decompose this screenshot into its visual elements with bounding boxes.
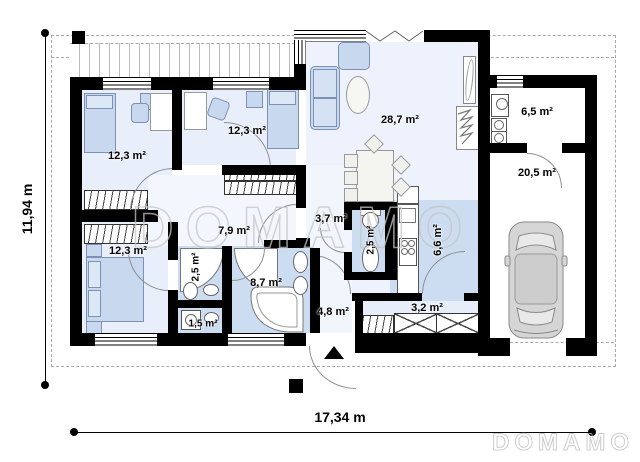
room-label-utility: 6,5 m² [521, 106, 553, 118]
dimension-dot [588, 428, 596, 436]
chair-icon [344, 171, 358, 185]
nightstand-icon [246, 91, 263, 108]
storage-box-icon [436, 313, 480, 334]
room-label-bedroom3: 12,3 m² [109, 245, 147, 257]
dimension-dot [41, 29, 49, 37]
wall [385, 202, 397, 280]
armchair-icon [338, 42, 370, 70]
room-label-bedroom2: 12,3 m² [228, 125, 266, 137]
burner-icon [408, 240, 415, 247]
wall [478, 30, 490, 346]
desk-icon [150, 93, 173, 131]
wall [296, 165, 306, 208]
wall [172, 90, 182, 170]
room-label-living-room: 28,7 m² [381, 114, 419, 126]
corner-window [294, 40, 306, 64]
entry-marker [289, 379, 303, 393]
dryer-door-icon [494, 133, 504, 143]
room-label-kitchen: 6,6 m² [432, 224, 444, 256]
wall [222, 165, 306, 175]
wall [566, 338, 597, 356]
burner-icon [408, 248, 415, 255]
window [103, 77, 151, 90]
fireplace-flame-icon [457, 108, 476, 146]
dimension-dot [41, 381, 49, 389]
wall [178, 300, 232, 308]
entrance-arrow-icon [324, 346, 344, 359]
watermark-footer: DOMAMO [492, 429, 634, 457]
wall [222, 308, 232, 333]
coffee-table-icon [346, 76, 370, 114]
window [497, 75, 523, 88]
sink-icon [203, 284, 219, 296]
wall [585, 75, 597, 356]
kitchen-sink-icon [399, 208, 416, 223]
wall [352, 293, 422, 301]
height-dimension-line [45, 33, 46, 385]
wall [296, 238, 310, 248]
height-dimension-label: 11,94 m [19, 184, 35, 235]
room-label-bathroom: 8,7 m² [250, 277, 282, 289]
burner-icon [401, 248, 408, 255]
wardrobe-icon [84, 224, 148, 244]
boiler-dial-icon [496, 98, 508, 110]
wall [168, 290, 178, 333]
sink-icon [293, 251, 308, 273]
chair-icon [131, 103, 149, 123]
pillow-icon [269, 91, 296, 105]
toilet-icon [183, 282, 198, 300]
wall [168, 222, 178, 260]
car-icon [504, 220, 568, 340]
pillow-icon [86, 95, 113, 109]
wardrobe-icon [224, 181, 306, 195]
room-label-hall: 3,7 m² [315, 213, 347, 225]
desk-icon [184, 92, 207, 130]
sofa-cushion-icon [313, 98, 337, 127]
window [228, 333, 284, 346]
sofa-cushion-icon [313, 69, 337, 98]
wall [310, 248, 320, 333]
wall [222, 246, 232, 308]
washing-machine-door-icon [494, 120, 504, 130]
wall [464, 293, 478, 301]
room-label-wc-small: 1,5 m² [189, 319, 218, 330]
chair-icon [344, 154, 358, 168]
wall [82, 210, 158, 222]
room-label-bedroom1: 12,3 m² [108, 150, 146, 162]
room-label-hallway: 4,8 m² [317, 306, 349, 318]
folding-door-icon [366, 30, 424, 42]
chair-icon [344, 188, 358, 202]
dimension-dot [70, 428, 78, 436]
room-label-shower-room: 2,5 m² [191, 253, 202, 282]
width-dimension-line [74, 432, 592, 433]
toilet-icon [293, 276, 308, 295]
burner-icon [401, 240, 408, 247]
wall [294, 62, 306, 90]
wall [355, 333, 478, 353]
nightstand-icon [86, 244, 102, 257]
entrance-opening [306, 333, 355, 346]
room-label-corridor: 7,9 m² [218, 225, 250, 237]
wall [70, 77, 82, 346]
room-label-garage: 20,5 m² [518, 167, 556, 179]
width-dimension-label: 17,34 m [314, 409, 365, 425]
pillow-icon [88, 290, 101, 317]
wall [355, 301, 363, 334]
wall [490, 143, 527, 153]
terrace-deck [70, 43, 295, 79]
window [95, 333, 157, 346]
storage-box-icon [394, 313, 438, 334]
corner-marker [72, 31, 85, 44]
wall [478, 338, 510, 356]
wall [562, 143, 597, 153]
floor-plan: 11,94 m 17,34 m 12,3 m² 12,3 m² 12,3 m² … [0, 0, 640, 462]
dining-table-icon [356, 150, 394, 202]
window [213, 77, 269, 90]
room-label-vestibule: 3,2 m² [411, 302, 443, 314]
pillow-icon [88, 261, 101, 288]
room-label-wc: 2,5 m² [366, 226, 377, 255]
